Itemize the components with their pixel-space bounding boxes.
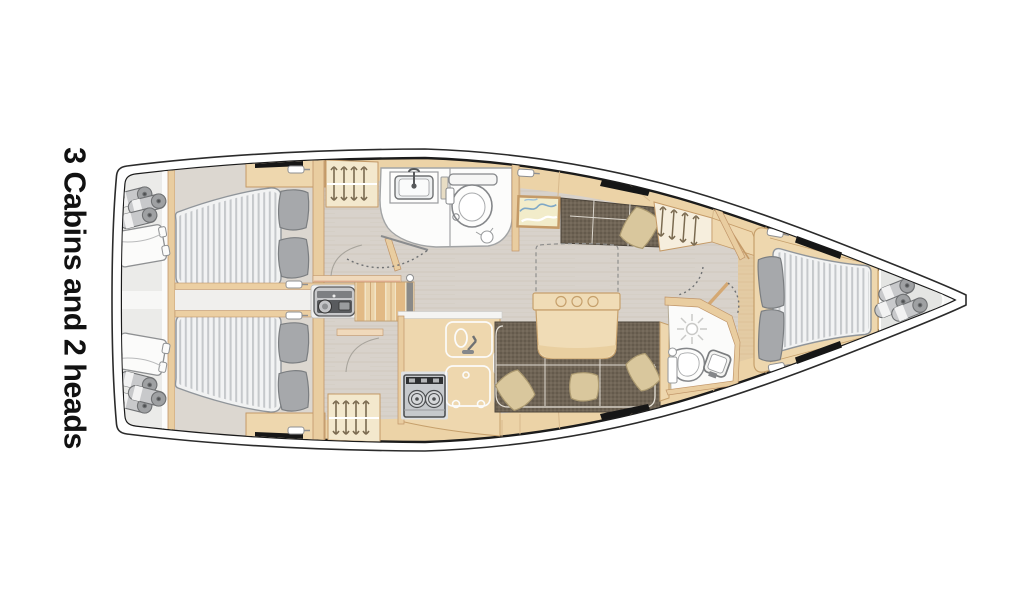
svg-text:3 Cabins and 2 heads: 3 Cabins and 2 heads xyxy=(58,147,92,449)
